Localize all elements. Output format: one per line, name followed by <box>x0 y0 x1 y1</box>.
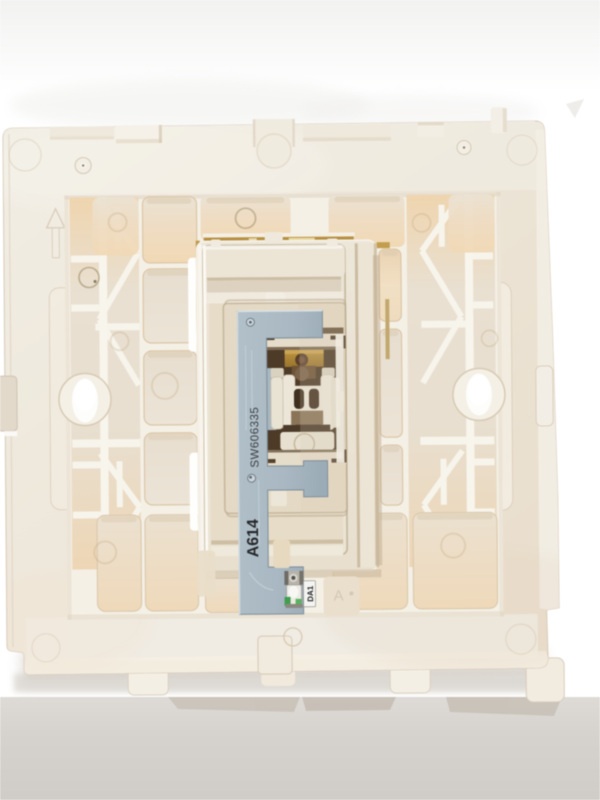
svg-text:A614: A614 <box>245 519 262 557</box>
svg-text:A: A <box>333 588 343 605</box>
svg-text:SW606335: SW606335 <box>249 407 261 468</box>
svg-text:DA1: DA1 <box>306 585 315 602</box>
